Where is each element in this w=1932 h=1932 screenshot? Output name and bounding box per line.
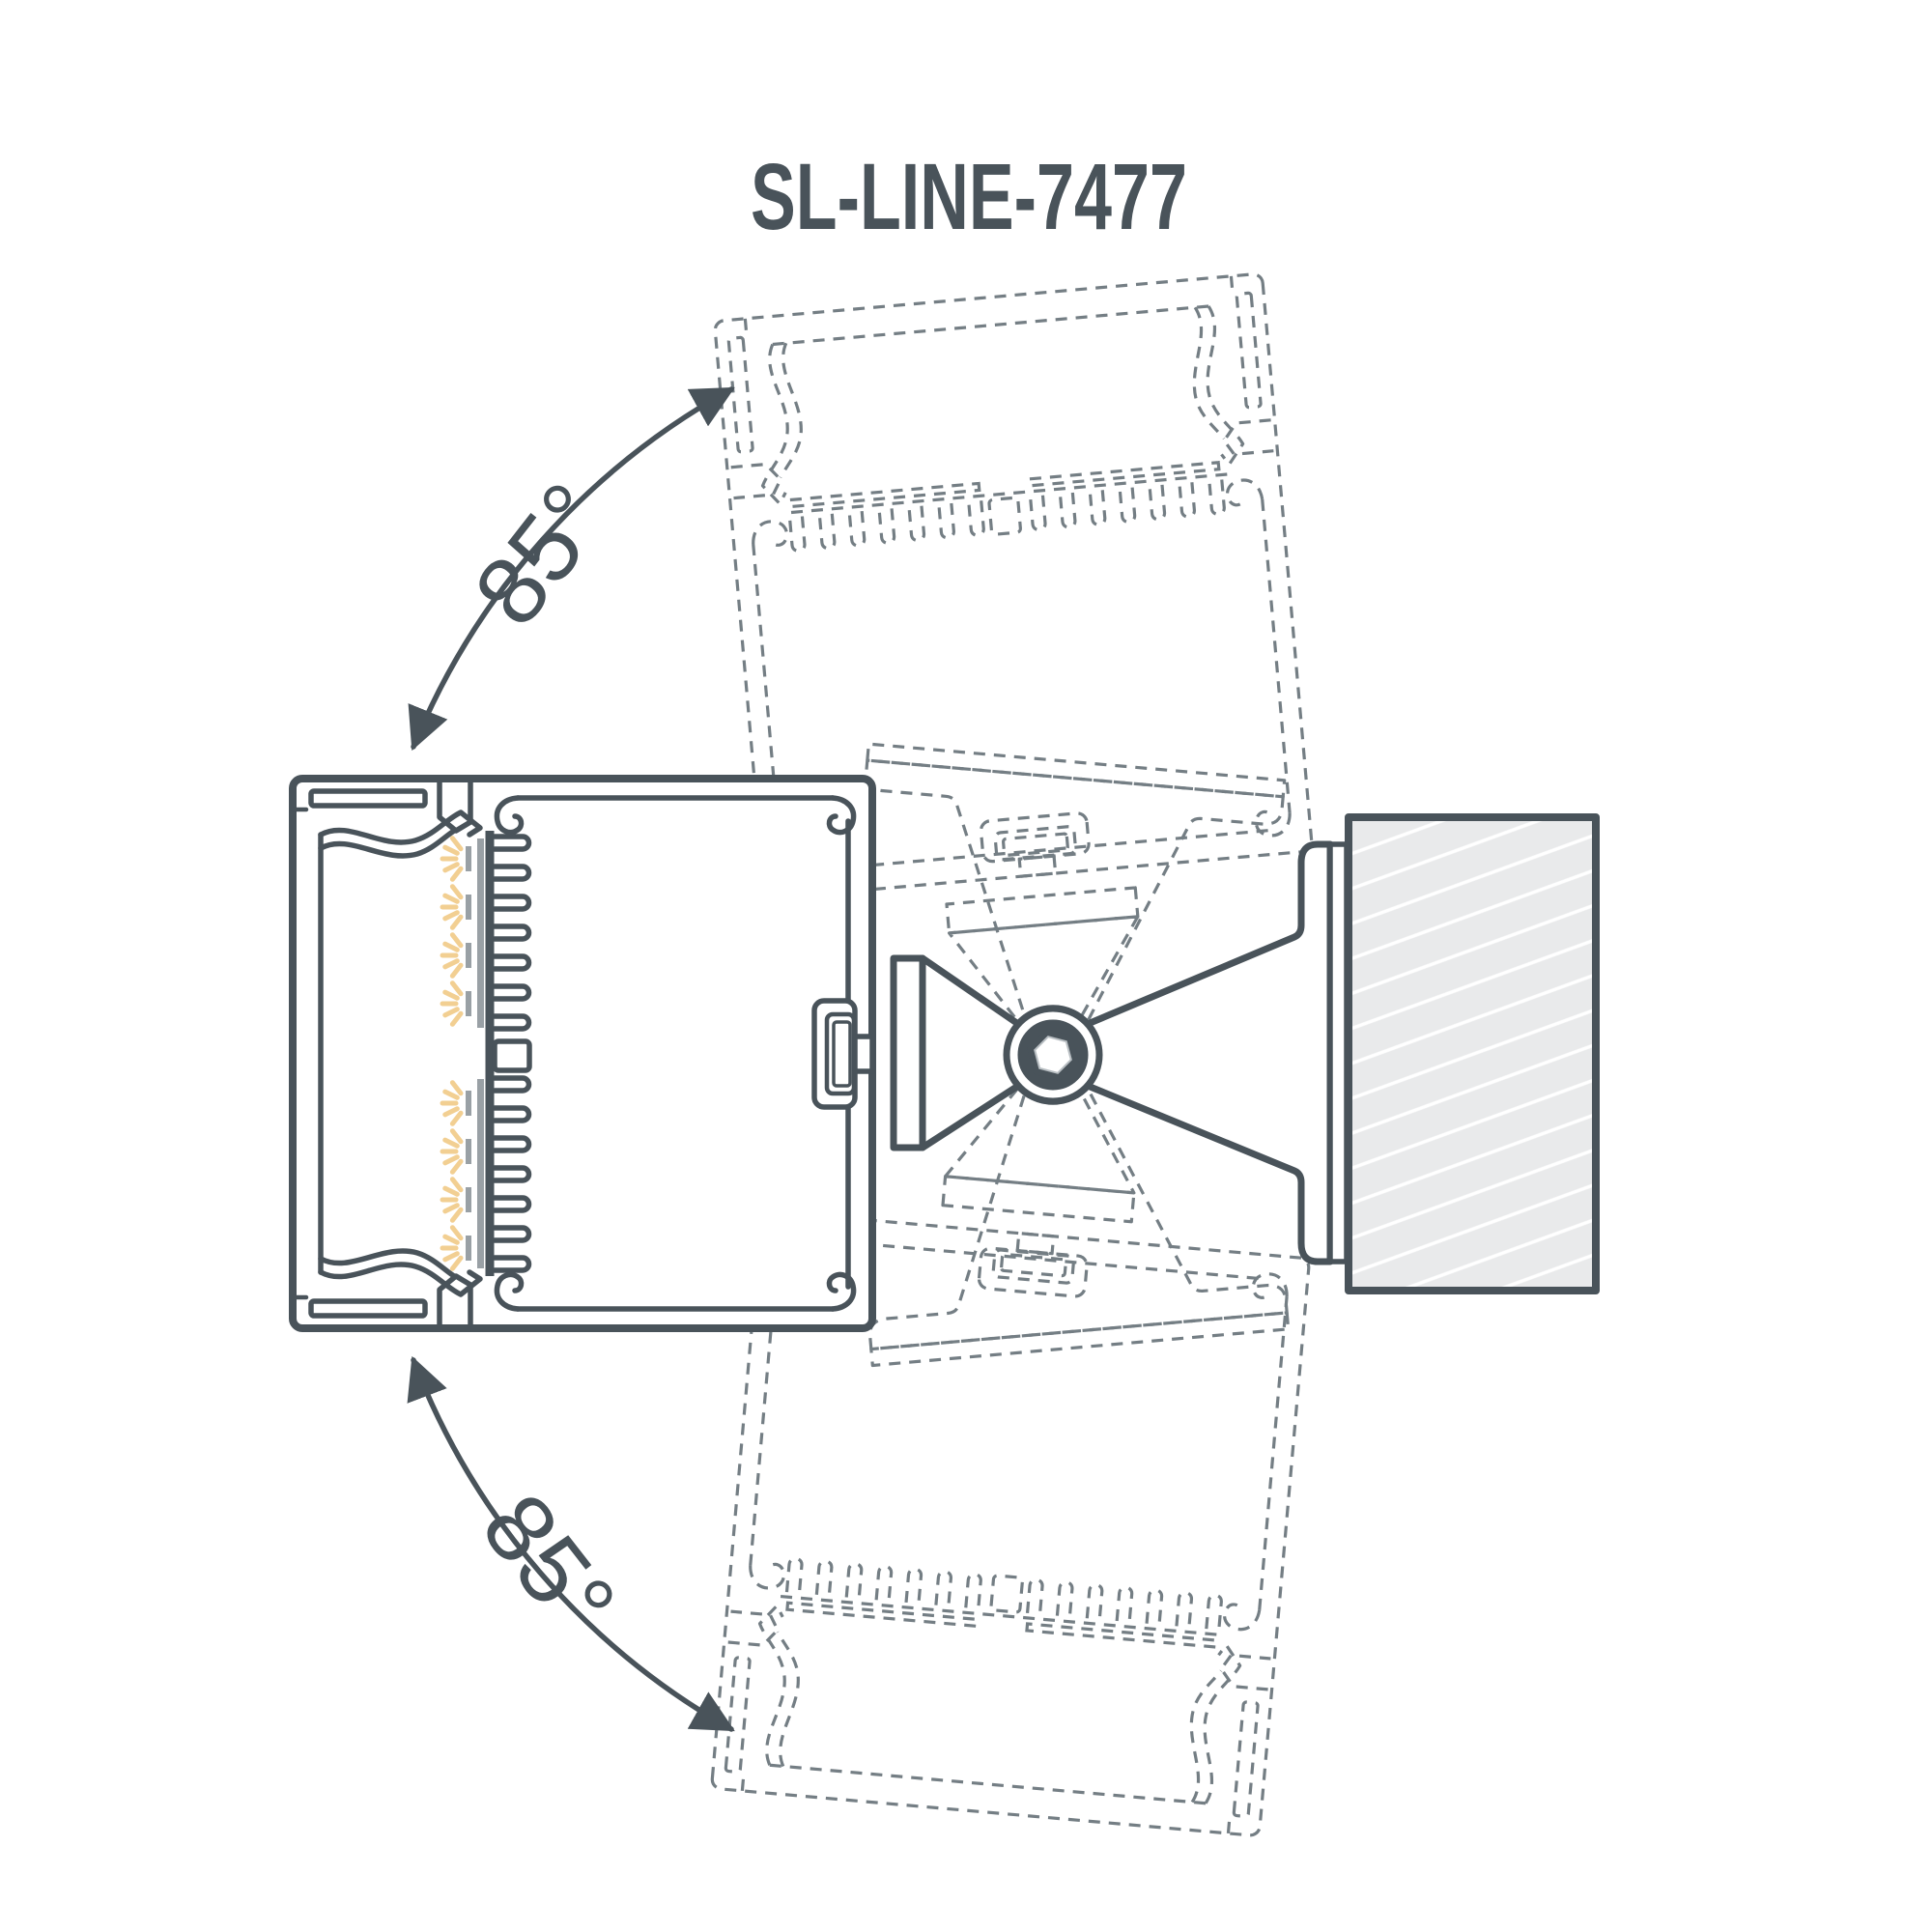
housing-post-bottom xyxy=(731,463,782,497)
wall-section xyxy=(1349,817,1596,1291)
hex-screw-icon xyxy=(1031,1033,1075,1077)
wall-hatch xyxy=(1349,817,1596,1291)
led-strip-lower xyxy=(1027,1624,1216,1647)
heatsink-fins xyxy=(789,480,1224,552)
bracket-plate xyxy=(894,958,923,1148)
screw-slot-curl-bl xyxy=(752,520,788,547)
lens-clip-top xyxy=(1236,293,1261,408)
mounting-bracket-arms xyxy=(923,844,1330,1262)
led-emitter-tick xyxy=(466,1139,471,1164)
lens-seat-ticks xyxy=(745,276,1232,332)
housing-post-bottom xyxy=(1220,1655,1271,1690)
led-emitter-tick xyxy=(466,1236,471,1261)
heatsink-mid-tab xyxy=(991,1576,1023,1612)
lens-cover xyxy=(751,304,1244,505)
screw-slot-curl-tl xyxy=(749,1562,785,1589)
screw-slot-curl-tl xyxy=(1226,478,1263,505)
bracket-plate xyxy=(947,888,1138,933)
lens-clip-top xyxy=(725,1658,750,1773)
wall-mount-plate xyxy=(1330,844,1347,1262)
wall-mount-plate xyxy=(871,1313,1289,1366)
led-emitter-tick xyxy=(466,846,471,871)
lens-clip-top xyxy=(311,791,425,806)
lens-clip-bottom xyxy=(1234,1702,1258,1817)
led-emitter-tick xyxy=(466,895,471,920)
heatsink-spine xyxy=(783,474,1227,513)
wall-mount-plate xyxy=(867,744,1285,797)
housing-post-top xyxy=(728,1611,780,1646)
led-emitter-tick xyxy=(466,943,471,968)
heatsink-fins xyxy=(786,1558,1221,1630)
led-strip-upper xyxy=(477,838,484,1028)
led-emitter-tick xyxy=(466,1091,471,1116)
screw-slot-curl-bl xyxy=(1223,1604,1260,1631)
lens-seat-ticks xyxy=(742,1777,1229,1833)
sl-line-7477-rotation-diagram: SL-LINE-7477 xyxy=(0,0,1932,1932)
led-emitter-tick xyxy=(466,991,471,1016)
lens-clip-bottom xyxy=(311,1301,425,1316)
housing-outline xyxy=(293,779,872,1328)
latch-pocket xyxy=(979,1230,1090,1296)
heatsink-mid-tab xyxy=(989,497,1021,534)
lens-clip-bottom xyxy=(728,337,753,452)
housing-post-top xyxy=(1223,420,1274,455)
led-emitter-tick xyxy=(466,1187,471,1212)
led-strip-lower xyxy=(790,483,980,506)
bracket-plate xyxy=(943,1177,1134,1222)
product-title: SL-LINE-7477 xyxy=(751,144,1187,249)
led-strip-lower xyxy=(477,1079,484,1268)
heatsink-mid-tab xyxy=(495,1041,529,1070)
